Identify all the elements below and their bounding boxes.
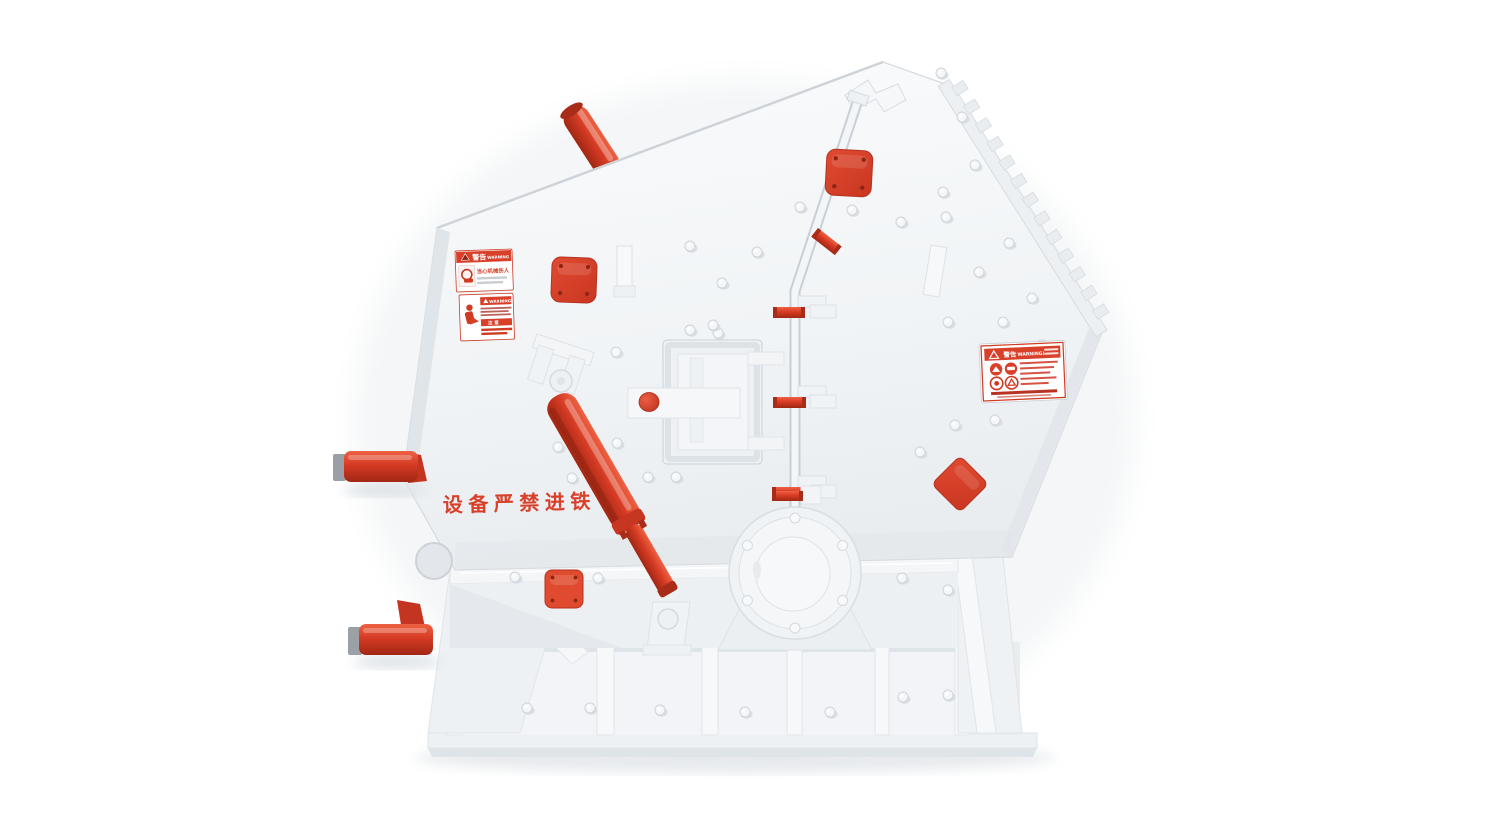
hazard-triangle-pictogram bbox=[1005, 376, 1018, 389]
cylinder-bottom-pin bbox=[658, 609, 678, 629]
red-pad-top-right bbox=[825, 149, 873, 197]
machine-render: 警告 WARNING 当心机械伤人 WARNING 注 意 bbox=[0, 0, 1500, 840]
pinch-point-pictogram bbox=[990, 377, 1003, 390]
door-hinge-bottom bbox=[748, 437, 784, 450]
bearing-top-bracket bbox=[801, 486, 821, 504]
label-c-header-cn: 警告 bbox=[1003, 349, 1017, 359]
red-pad-base bbox=[545, 570, 583, 608]
bearing-cap bbox=[756, 537, 830, 611]
warning-label-small-top: 警告 WARNING 当心机械伤人 bbox=[455, 249, 513, 292]
label-a-header-cn: 警告 bbox=[472, 252, 486, 261]
label-a-header-en: WARNING bbox=[487, 254, 509, 260]
warning-label-small-bottom: WARNING 注 意 bbox=[459, 293, 515, 341]
door-hinge-top bbox=[748, 352, 784, 365]
inspection-hole bbox=[416, 543, 452, 579]
red-pad-door-left bbox=[551, 257, 598, 304]
machine-slogan-text: 设备严禁进铁 bbox=[443, 489, 597, 517]
product-render-canvas: 警告 WARNING 当心机械伤人 WARNING 注 意 bbox=[0, 0, 1500, 840]
door-knob bbox=[639, 393, 659, 412]
left-pipe-top bbox=[333, 451, 427, 483]
left-pipe-bottom bbox=[348, 600, 433, 655]
label-c-header-en: WARNING! bbox=[1017, 351, 1044, 358]
panel-rib-tab-left bbox=[614, 246, 635, 297]
warning-label-large-right: 警告 WARNING! bbox=[979, 340, 1067, 403]
bearing-red-fitting bbox=[772, 491, 803, 501]
label-b-header-en: WARNING bbox=[489, 298, 511, 304]
